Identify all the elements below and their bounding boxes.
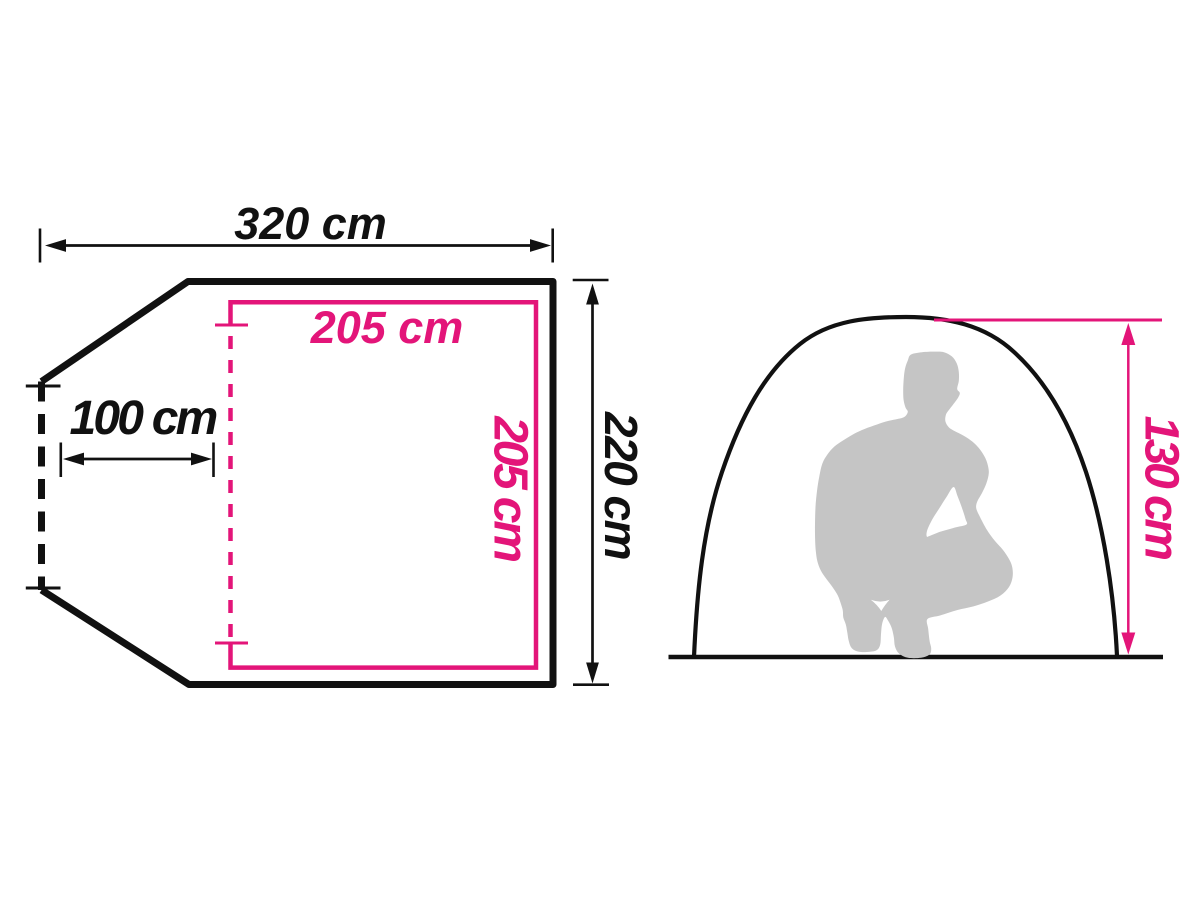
- svg-text:205 cm: 205 cm: [483, 415, 536, 561]
- svg-text:320 cm: 320 cm: [234, 198, 387, 249]
- svg-text:220 cm: 220 cm: [595, 411, 647, 559]
- svg-text:205 cm: 205 cm: [310, 302, 464, 353]
- svg-text:100 cm: 100 cm: [70, 392, 217, 445]
- svg-text:130 cm: 130 cm: [1135, 416, 1188, 560]
